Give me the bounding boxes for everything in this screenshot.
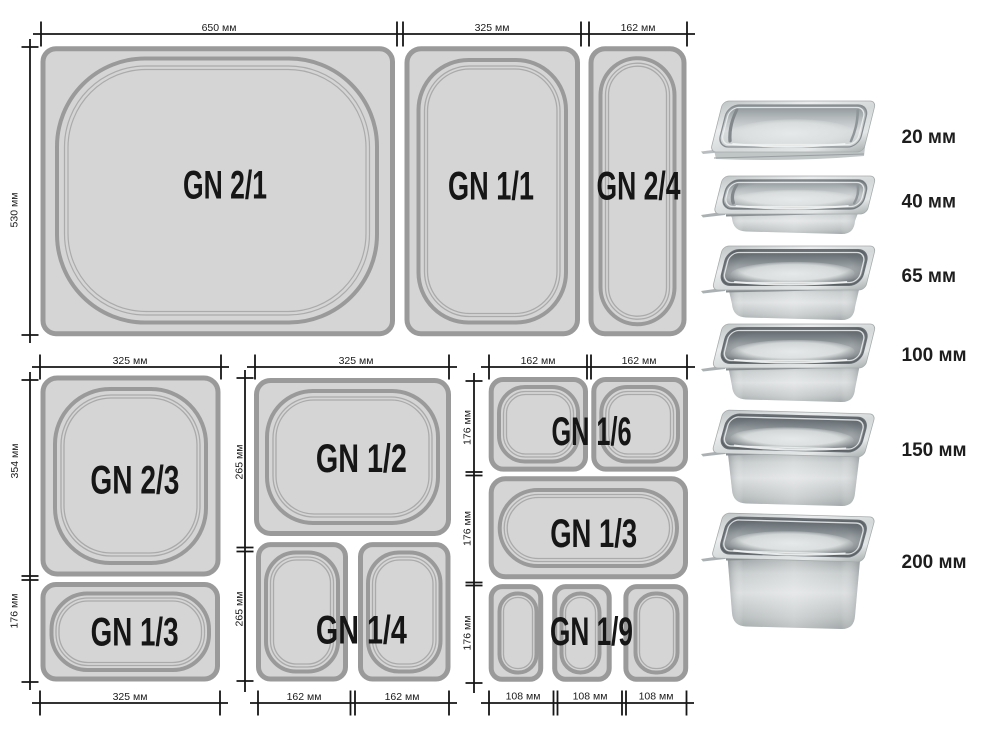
svg-text:325 мм: 325 мм (113, 355, 148, 367)
svg-text:108 мм: 108 мм (506, 691, 541, 703)
svg-text:176 мм: 176 мм (462, 410, 474, 445)
svg-text:176 мм: 176 мм (9, 594, 21, 629)
svg-text:108 мм: 108 мм (573, 691, 608, 703)
svg-text:162 мм: 162 мм (622, 355, 657, 367)
svg-text:GN 2/4: GN 2/4 (597, 165, 681, 209)
svg-text:325 мм: 325 мм (339, 355, 374, 367)
svg-text:GN 1/6: GN 1/6 (552, 410, 632, 454)
svg-text:176 мм: 176 мм (462, 616, 474, 651)
svg-text:162 мм: 162 мм (385, 691, 420, 703)
svg-text:354 мм: 354 мм (9, 444, 21, 479)
svg-text:530 мм: 530 мм (9, 193, 21, 228)
svg-text:265 мм: 265 мм (234, 445, 246, 480)
svg-text:176 мм: 176 мм (462, 511, 474, 546)
svg-text:325 мм: 325 мм (475, 22, 510, 34)
svg-text:GN 1/3: GN 1/3 (91, 611, 179, 655)
svg-text:200 мм: 200 мм (902, 552, 967, 573)
svg-text:GN 1/1: GN 1/1 (448, 165, 534, 209)
svg-text:GN 2/1: GN 2/1 (183, 164, 267, 208)
svg-text:GN 1/9: GN 1/9 (550, 610, 633, 654)
svg-text:325 мм: 325 мм (113, 691, 148, 703)
svg-text:150 мм: 150 мм (902, 440, 967, 461)
svg-text:65 мм: 65 мм (902, 266, 957, 287)
svg-text:100 мм: 100 мм (902, 345, 967, 366)
svg-text:GN 1/4: GN 1/4 (316, 609, 408, 653)
svg-text:162 мм: 162 мм (621, 22, 656, 34)
svg-text:GN 1/3: GN 1/3 (550, 512, 637, 556)
svg-text:40 мм: 40 мм (902, 192, 957, 213)
svg-text:265 мм: 265 мм (234, 592, 246, 627)
svg-text:GN 1/2: GN 1/2 (316, 437, 407, 481)
svg-text:162 мм: 162 мм (521, 355, 556, 367)
svg-text:20 мм: 20 мм (902, 127, 957, 148)
svg-text:108 мм: 108 мм (639, 691, 674, 703)
svg-text:650 мм: 650 мм (202, 22, 237, 34)
svg-text:GN 2/3: GN 2/3 (90, 459, 179, 503)
svg-text:162 мм: 162 мм (287, 691, 322, 703)
